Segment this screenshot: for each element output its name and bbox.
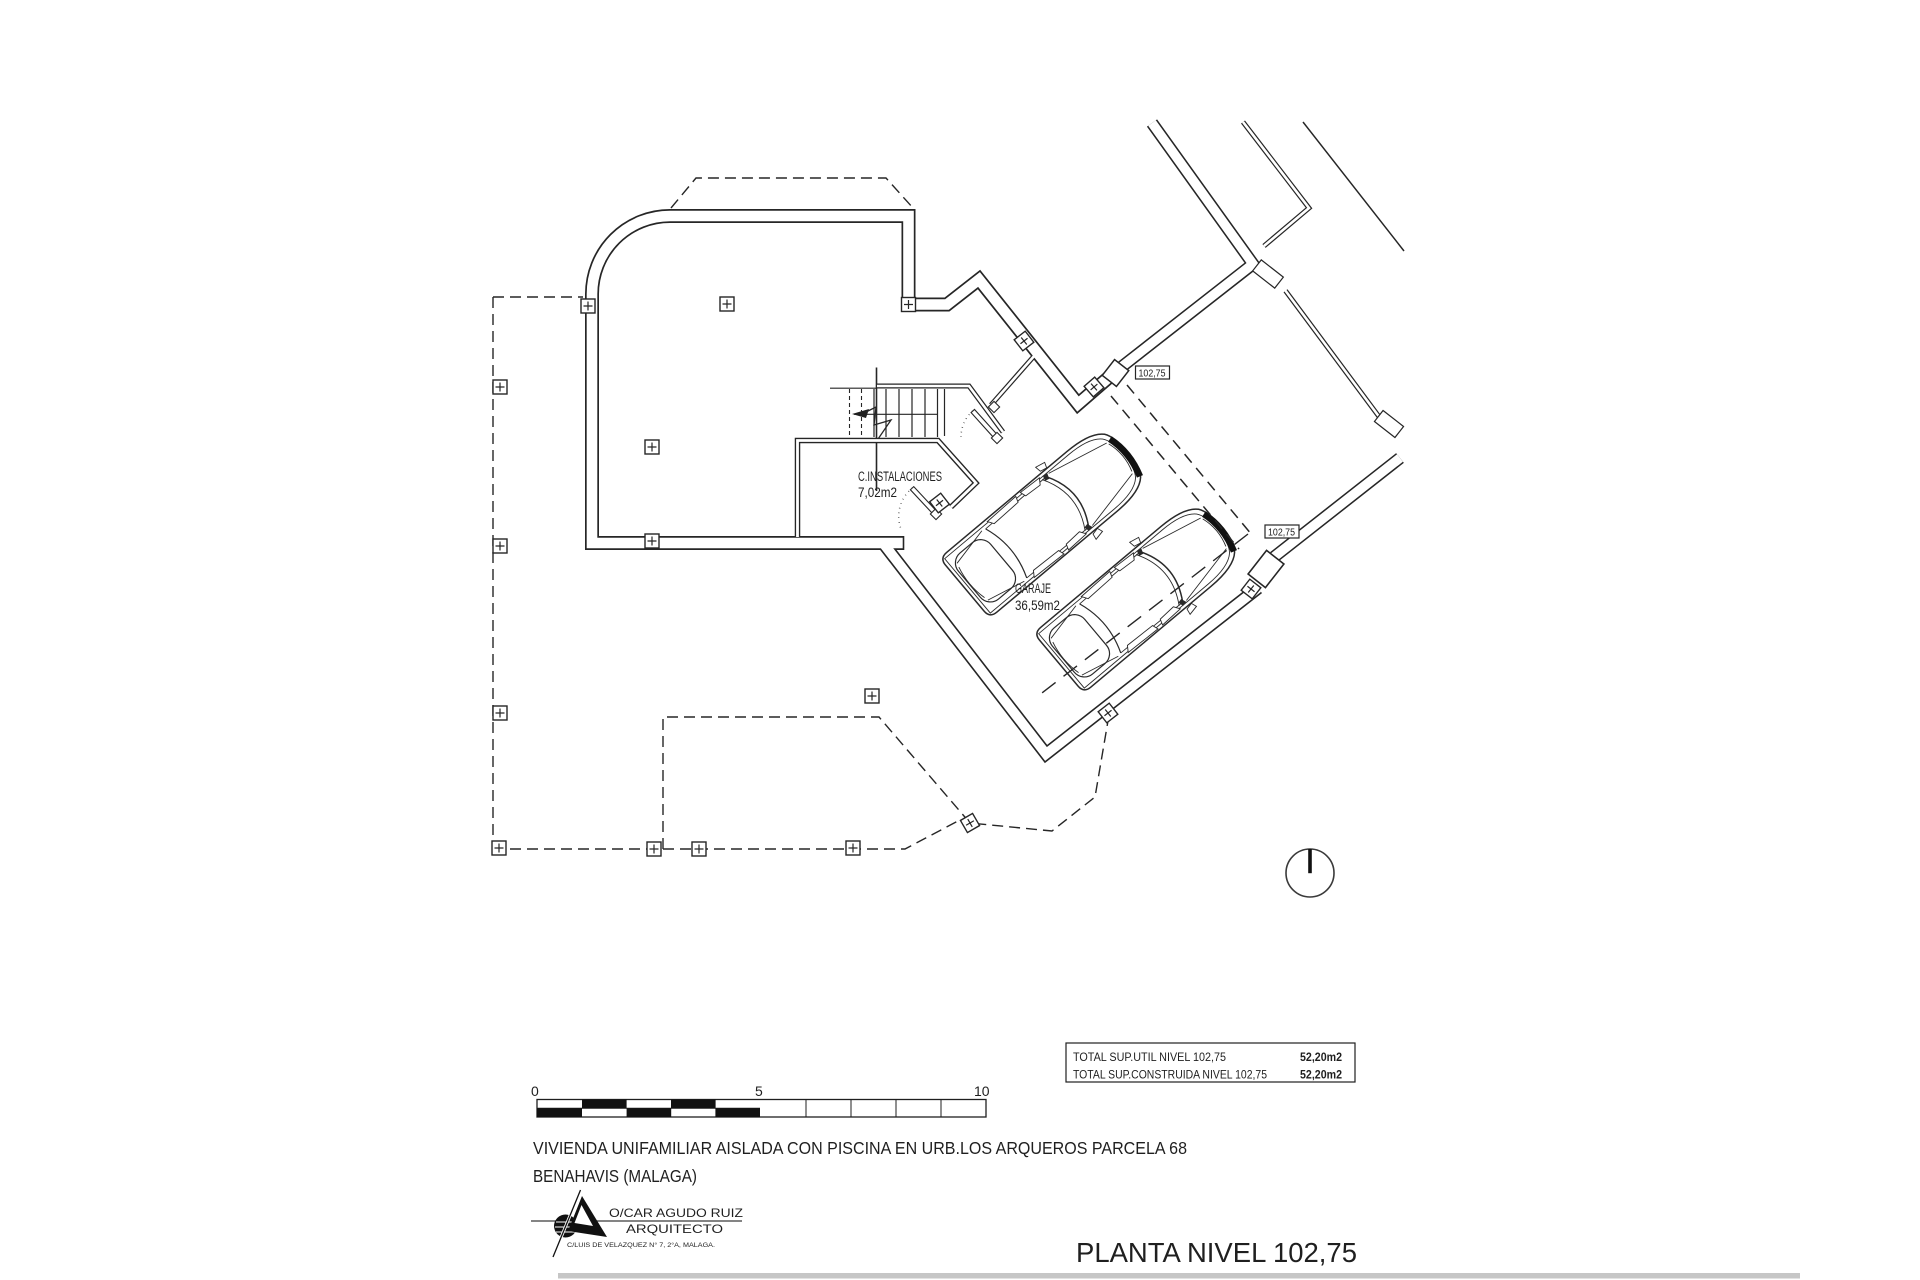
svg-text:ARQUITECTO: ARQUITECTO (626, 1222, 723, 1236)
svg-text:C/LUIS DE VELAZQUEZ N° 7,: C/LUIS DE VELAZQUEZ N° 7, 2°A, MALAGA. (567, 1241, 715, 1249)
svg-text:TOTAL SUP.CONSTRUIDA NIVEL: TOTAL SUP.CONSTRUIDA NIVEL 102,75 (1073, 1070, 1267, 1082)
svg-text:GARAJE: GARAJE (1015, 581, 1051, 596)
svg-text:52,20m2: 52,20m2 (1300, 1052, 1342, 1064)
svg-text:102,75: 102,75 (1268, 528, 1295, 539)
svg-text:52,20m2: 52,20m2 (1300, 1070, 1342, 1082)
svg-text:TOTAL SUP.UTIL NIVEL 102: TOTAL SUP.UTIL NIVEL 102,75 (1073, 1052, 1226, 1064)
svg-text:36,59m2: 36,59m2 (1015, 598, 1060, 613)
svg-text:0: 0 (531, 1083, 539, 1099)
svg-text:5: 5 (755, 1083, 763, 1099)
svg-text:7,02m2: 7,02m2 (858, 485, 897, 500)
svg-text:10: 10 (974, 1083, 990, 1099)
svg-text:BENAHAVIS (MALAGA): BENAHAVIS (MALAGA) (533, 1166, 697, 1186)
svg-text:PLANTA NIVEL 102,75: PLANTA NIVEL 102,75 (1076, 1237, 1357, 1268)
svg-text:102,75: 102,75 (1139, 369, 1166, 380)
svg-text:C.INSTALACIONES: C.INSTALACIONES (858, 469, 942, 484)
svg-text:O/CAR AGUDO RUIZ: O/CAR AGUDO RUIZ (609, 1206, 743, 1220)
svg-text:VIVIENDA UNIFAMILIAR AISLADA: VIVIENDA UNIFAMILIAR AISLADA CON PISCINA… (533, 1138, 1187, 1158)
